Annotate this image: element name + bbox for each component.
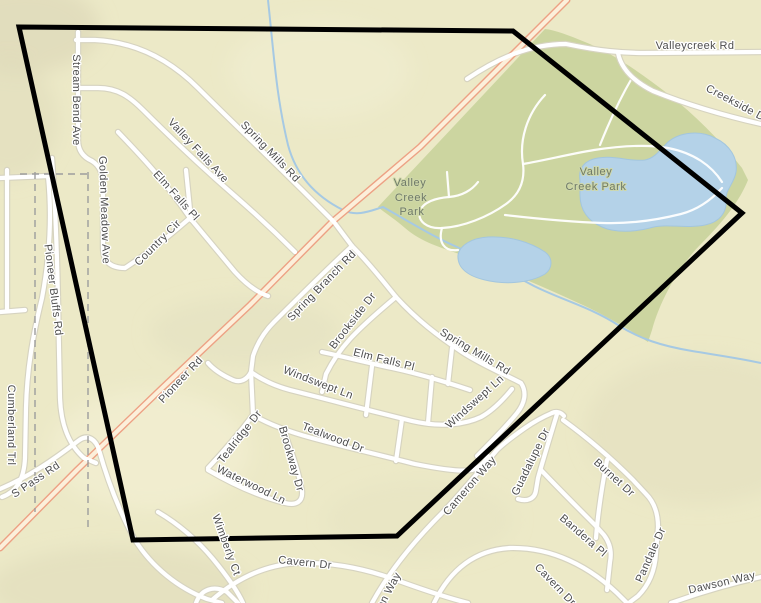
park-label-valley: Valley [580,166,613,178]
park-label-creek-park: Creek Park [565,181,626,193]
map-canvas[interactable]: Valleycreek RdCreekside DrStream Bend Av… [0,0,761,603]
street-label-cumberland-trl: Cumberland Trl [5,385,17,466]
street-label-stream-bend-ave: Stream Bend Ave [70,54,82,145]
map-viewport[interactable]: Valleycreek RdCreekside DrStream Bend Av… [0,0,761,603]
park-label-creek: Creek [395,192,427,204]
park-label-valley: Valley [394,177,427,189]
park-label-park: Park [399,206,424,218]
street-label-valleycreek-rd: Valleycreek Rd [656,40,735,52]
